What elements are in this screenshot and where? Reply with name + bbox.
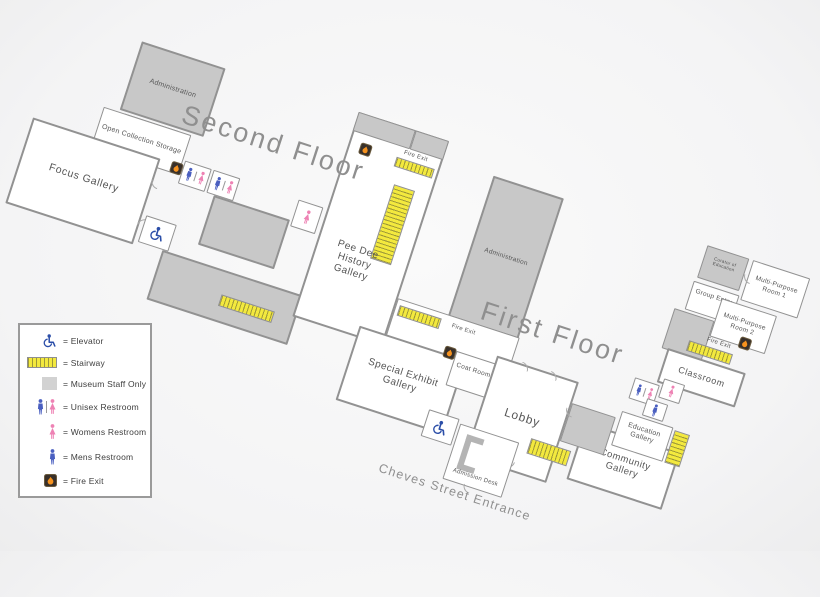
legend-label: = Museum Staff Only	[63, 379, 146, 389]
room-womens-restroom	[290, 200, 323, 235]
womens-restroom-icon	[666, 384, 678, 399]
legend-label: = Unisex Restroom	[63, 402, 139, 412]
womens-restroom-icon	[48, 399, 57, 415]
fire-exit-icon	[44, 474, 57, 487]
legend-label: = Womens Restroom	[63, 427, 146, 437]
legend-label: = Mens Restroom	[63, 452, 133, 462]
womens-restroom-icon	[224, 180, 236, 196]
elevator-icon	[148, 224, 167, 243]
legend-item-elevator: = Elevator	[27, 334, 143, 348]
legend-item-fire-exit: = Fire Exit	[27, 474, 143, 487]
legend-label: = Fire Exit	[63, 476, 104, 486]
room-unisex-restroom	[178, 161, 212, 192]
womens-restroom-icon	[48, 424, 57, 440]
legend-item-unisex-restroom: = Unisex Restroom	[27, 399, 143, 415]
museum-staff-only-icon	[42, 377, 57, 390]
divider	[46, 401, 47, 413]
legend-item-mens-restroom: = Mens Restroom	[27, 449, 143, 465]
staff-area	[198, 195, 290, 269]
stairway-icon	[27, 357, 57, 368]
legend-label: = Stairway	[63, 358, 105, 368]
legend-label: = Elevator	[63, 336, 104, 346]
room-unisex-restroom	[206, 170, 240, 201]
mens-restroom-icon	[48, 449, 57, 465]
room-elevator	[138, 215, 177, 252]
legend-item-womens-restroom: = Womens Restroom	[27, 424, 143, 440]
mens-restroom-icon	[649, 403, 661, 418]
mens-restroom-icon	[36, 399, 45, 415]
elevator-icon	[431, 418, 450, 437]
womens-restroom-icon	[195, 170, 207, 186]
elevator-icon	[43, 334, 57, 348]
legend-item-museum-staff: = Museum Staff Only	[27, 377, 143, 390]
womens-restroom-icon	[300, 208, 313, 225]
legend: = Elevator = Stairway = Museum Staff Onl…	[18, 323, 152, 498]
legend-item-stairway: = Stairway	[27, 357, 143, 368]
